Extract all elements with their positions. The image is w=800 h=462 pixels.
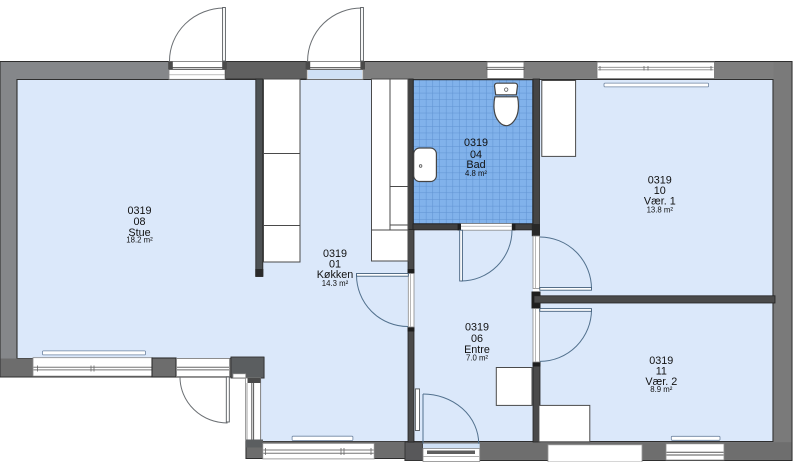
svg-text:4.8 m²: 4.8 m² xyxy=(465,169,487,178)
svg-text:7.0 m²: 7.0 m² xyxy=(466,353,488,362)
svg-text:13.8 m²: 13.8 m² xyxy=(647,205,674,214)
svg-text:0319: 0319 xyxy=(465,322,489,334)
svg-text:8.9 m²: 8.9 m² xyxy=(650,385,672,394)
svg-text:0319: 0319 xyxy=(464,137,488,149)
svg-text:18.2 m²: 18.2 m² xyxy=(126,235,153,244)
svg-text:14.3 m²: 14.3 m² xyxy=(322,279,349,288)
